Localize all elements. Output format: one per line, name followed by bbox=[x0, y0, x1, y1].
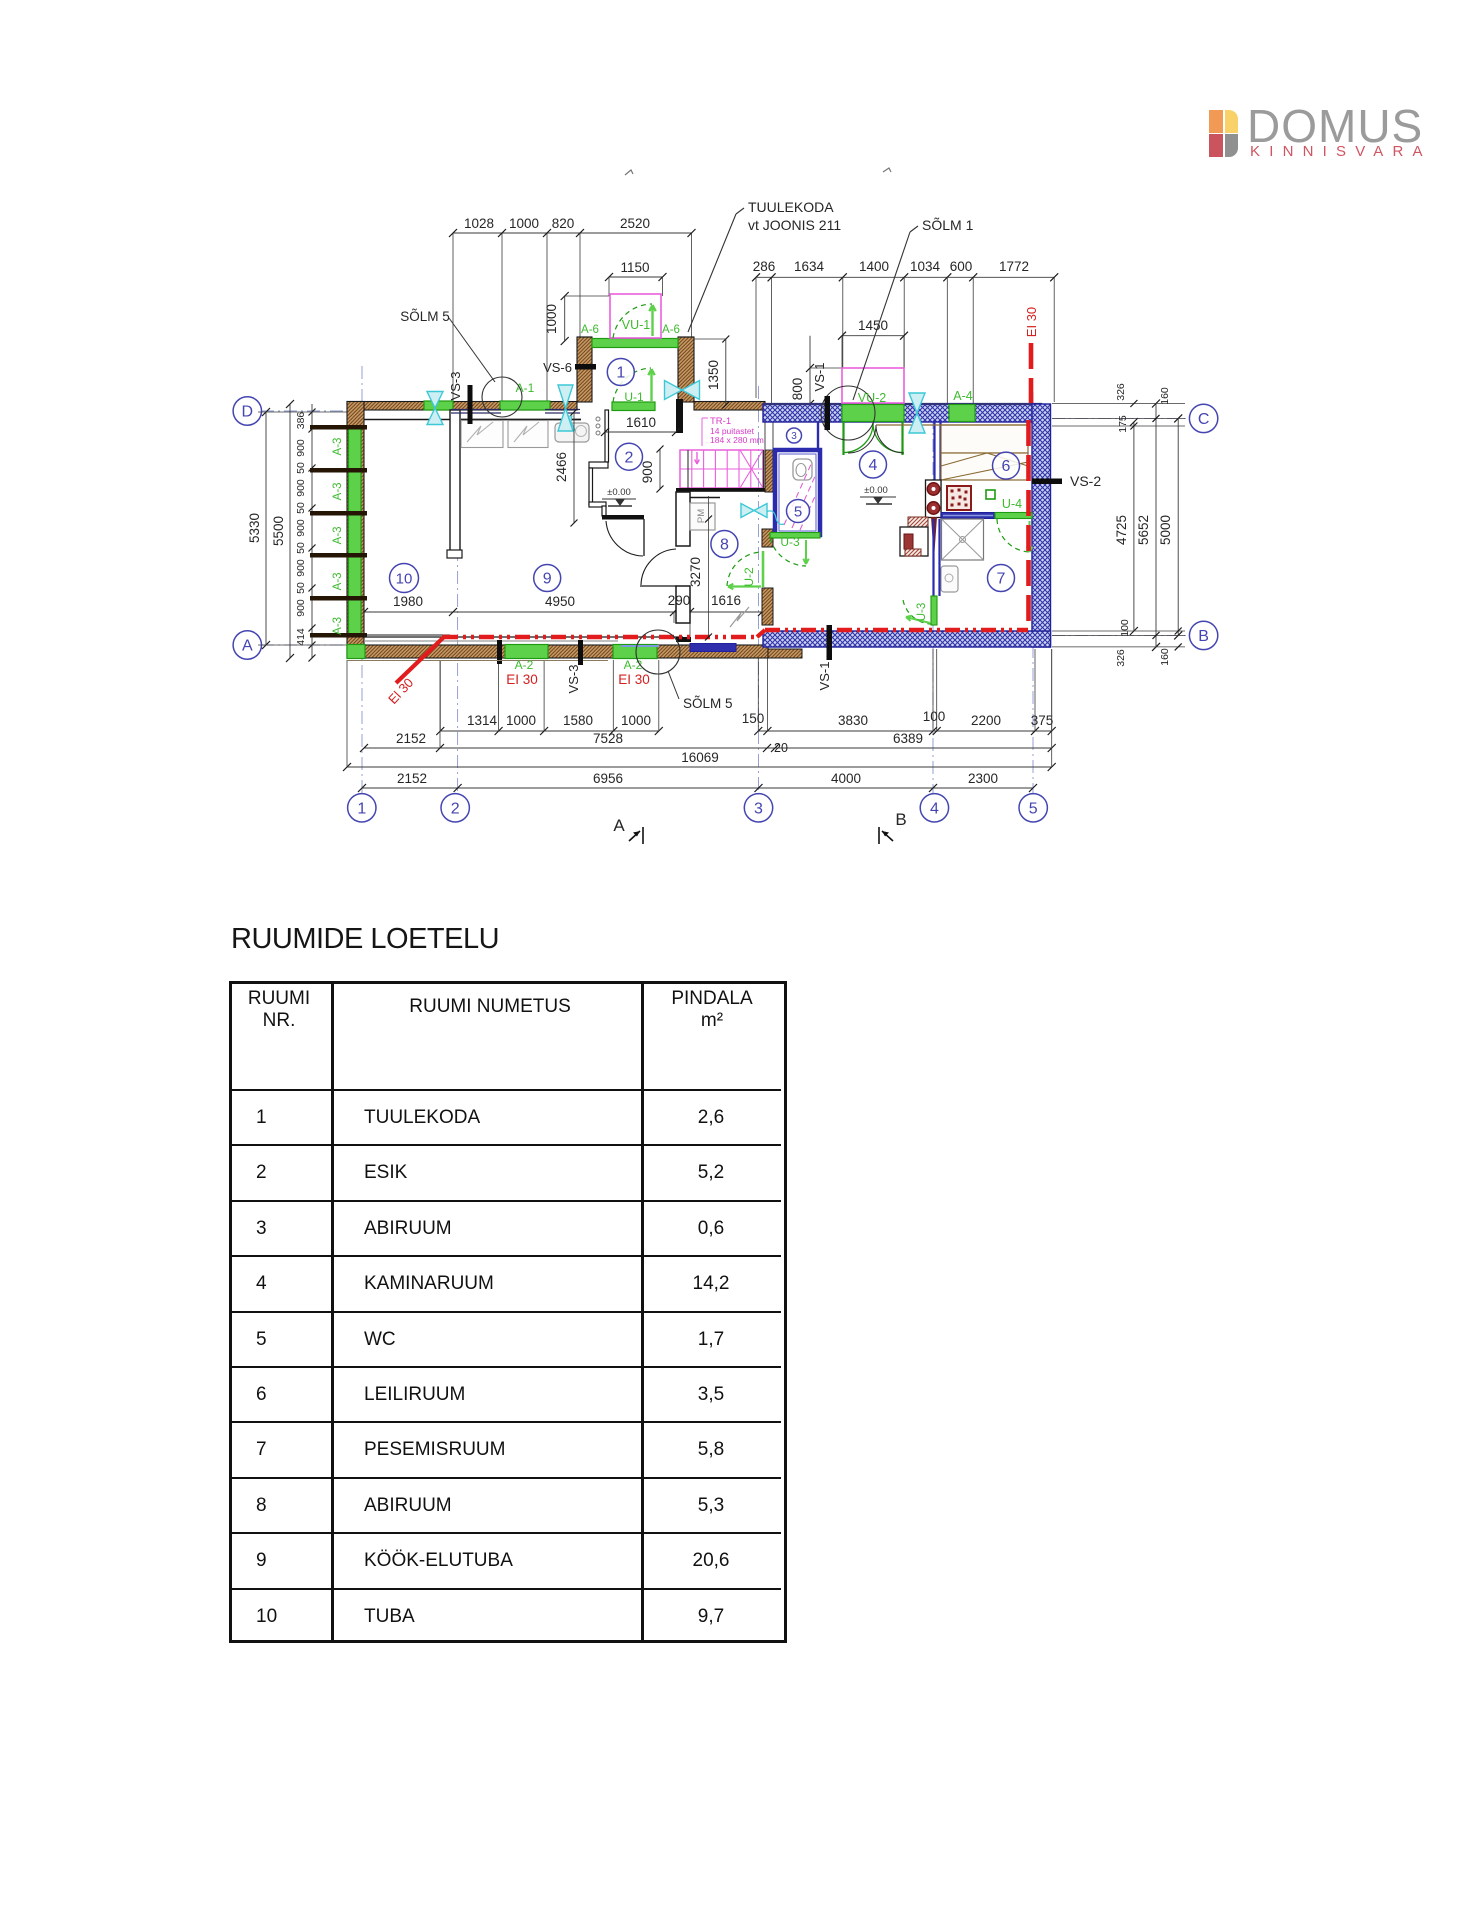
svg-text:U-4: U-4 bbox=[1002, 497, 1022, 511]
svg-text:4950: 4950 bbox=[545, 594, 575, 609]
svg-text:3: 3 bbox=[754, 800, 763, 817]
svg-text:U-1: U-1 bbox=[624, 390, 644, 404]
svg-text:50: 50 bbox=[295, 582, 307, 594]
svg-text:100: 100 bbox=[1119, 619, 1131, 637]
svg-text:A-4: A-4 bbox=[953, 389, 973, 403]
svg-text:2152: 2152 bbox=[397, 771, 427, 786]
svg-text:1772: 1772 bbox=[999, 259, 1029, 274]
svg-text:386: 386 bbox=[295, 412, 307, 430]
svg-text:B: B bbox=[1198, 628, 1209, 645]
svg-text:16069: 16069 bbox=[681, 750, 719, 765]
svg-text:2200: 2200 bbox=[971, 713, 1001, 728]
svg-text:5652: 5652 bbox=[1136, 515, 1151, 545]
svg-text:1634: 1634 bbox=[794, 259, 825, 274]
svg-text:1028: 1028 bbox=[464, 216, 494, 231]
svg-text:vt JOONIS 211: vt JOONIS 211 bbox=[748, 217, 841, 233]
svg-text:6: 6 bbox=[1002, 458, 1011, 475]
svg-text:VU-1: VU-1 bbox=[622, 318, 651, 332]
svg-text:1580: 1580 bbox=[563, 713, 593, 728]
svg-text:VS-6: VS-6 bbox=[543, 360, 572, 375]
svg-text:900: 900 bbox=[295, 519, 307, 537]
svg-text:5000: 5000 bbox=[1158, 515, 1173, 545]
svg-text:A-3: A-3 bbox=[332, 526, 344, 544]
svg-text:175: 175 bbox=[1117, 415, 1129, 433]
svg-text:2152: 2152 bbox=[396, 731, 426, 746]
svg-text:5: 5 bbox=[1029, 800, 1038, 817]
svg-text:5: 5 bbox=[794, 503, 802, 520]
svg-text:4: 4 bbox=[869, 457, 878, 474]
svg-text:600: 600 bbox=[950, 259, 973, 274]
svg-text:2: 2 bbox=[451, 800, 460, 817]
svg-text:7: 7 bbox=[997, 571, 1006, 588]
svg-text:50: 50 bbox=[295, 462, 307, 474]
svg-text:±0.00: ±0.00 bbox=[864, 485, 888, 496]
svg-text:±0.00: ±0.00 bbox=[607, 487, 631, 498]
svg-text:2300: 2300 bbox=[968, 771, 998, 786]
svg-text:4000: 4000 bbox=[831, 771, 861, 786]
svg-text:20: 20 bbox=[774, 741, 788, 755]
svg-text:El 30: El 30 bbox=[385, 675, 416, 707]
svg-text:A: A bbox=[242, 638, 253, 655]
svg-text:900: 900 bbox=[295, 559, 307, 577]
svg-text:A-3: A-3 bbox=[332, 482, 344, 500]
svg-text:VS-1: VS-1 bbox=[817, 662, 832, 691]
svg-text:VS-1: VS-1 bbox=[812, 363, 827, 392]
svg-text:PM: PM bbox=[696, 509, 707, 523]
svg-text:326: 326 bbox=[1115, 383, 1127, 401]
svg-text:1610: 1610 bbox=[626, 415, 656, 430]
svg-text:7528: 7528 bbox=[593, 731, 623, 746]
svg-text:VU-2: VU-2 bbox=[858, 391, 887, 405]
svg-text:10: 10 bbox=[396, 570, 413, 587]
svg-text:1034: 1034 bbox=[910, 259, 941, 274]
svg-text:50: 50 bbox=[295, 502, 307, 514]
svg-text:VS-3: VS-3 bbox=[448, 372, 463, 401]
svg-text:414: 414 bbox=[295, 628, 307, 646]
svg-text:5330: 5330 bbox=[247, 513, 262, 543]
svg-text:900: 900 bbox=[295, 439, 307, 457]
svg-text:A: A bbox=[613, 816, 625, 835]
svg-text:1150: 1150 bbox=[620, 260, 649, 275]
svg-text:A-6: A-6 bbox=[581, 324, 599, 336]
svg-text:C: C bbox=[1198, 411, 1210, 428]
svg-text:U-2: U-2 bbox=[742, 567, 756, 587]
svg-text:A-6: A-6 bbox=[662, 324, 680, 336]
svg-text:900: 900 bbox=[295, 599, 307, 617]
svg-text:100: 100 bbox=[923, 709, 946, 724]
svg-text:3830: 3830 bbox=[838, 713, 868, 728]
svg-text:800: 800 bbox=[790, 378, 805, 401]
svg-text:D: D bbox=[242, 404, 254, 421]
svg-text:50: 50 bbox=[295, 542, 307, 554]
svg-text:1000: 1000 bbox=[506, 713, 536, 728]
svg-text:SÕLM 5: SÕLM 5 bbox=[683, 696, 733, 711]
svg-text:A-1: A-1 bbox=[516, 381, 535, 395]
svg-text:2466: 2466 bbox=[554, 452, 569, 482]
svg-text:290: 290 bbox=[668, 593, 691, 608]
svg-text:1: 1 bbox=[357, 800, 366, 817]
svg-text:375: 375 bbox=[1031, 713, 1054, 728]
svg-text:A-3: A-3 bbox=[332, 572, 344, 590]
svg-text:1400: 1400 bbox=[859, 259, 889, 274]
svg-text:1: 1 bbox=[616, 365, 625, 382]
svg-text:3: 3 bbox=[791, 431, 797, 442]
svg-text:1980: 1980 bbox=[393, 594, 423, 609]
svg-text:A-3: A-3 bbox=[332, 438, 344, 456]
svg-text:EI 30: EI 30 bbox=[506, 672, 538, 687]
svg-text:286: 286 bbox=[753, 259, 776, 274]
svg-text:9: 9 bbox=[543, 571, 552, 588]
svg-text:150: 150 bbox=[742, 711, 765, 726]
svg-text:184 x 280 mm: 184 x 280 mm bbox=[710, 435, 764, 445]
svg-text:1000: 1000 bbox=[509, 216, 539, 231]
svg-text:VS-2: VS-2 bbox=[1070, 473, 1101, 489]
svg-text:6956: 6956 bbox=[593, 771, 623, 786]
svg-text:900: 900 bbox=[295, 479, 307, 497]
svg-text:A-3: A-3 bbox=[332, 617, 344, 635]
svg-text:900: 900 bbox=[640, 461, 655, 484]
svg-text:1350: 1350 bbox=[706, 360, 721, 390]
svg-text:TUULEKODA: TUULEKODA bbox=[748, 199, 834, 215]
svg-text:U-3: U-3 bbox=[916, 603, 928, 622]
svg-text:6389: 6389 bbox=[893, 731, 923, 746]
svg-text:B: B bbox=[895, 810, 906, 829]
svg-text:2520: 2520 bbox=[620, 216, 650, 231]
svg-text:1000: 1000 bbox=[544, 304, 559, 334]
svg-text:160: 160 bbox=[1159, 648, 1171, 666]
svg-text:8: 8 bbox=[720, 537, 729, 554]
svg-text:1314: 1314 bbox=[467, 713, 498, 728]
svg-text:EI 30: EI 30 bbox=[618, 672, 650, 687]
svg-text:820: 820 bbox=[552, 216, 575, 231]
svg-text:3270: 3270 bbox=[688, 557, 703, 587]
svg-text:SÕLM 1: SÕLM 1 bbox=[922, 217, 974, 233]
svg-text:160: 160 bbox=[1159, 387, 1171, 405]
svg-text:A-2: A-2 bbox=[515, 658, 534, 672]
svg-text:326: 326 bbox=[1115, 649, 1127, 667]
svg-text:4725: 4725 bbox=[1114, 515, 1129, 545]
svg-text:1450: 1450 bbox=[858, 318, 888, 333]
svg-text:U-3: U-3 bbox=[780, 535, 800, 549]
svg-text:4: 4 bbox=[930, 800, 939, 817]
svg-text:1000: 1000 bbox=[621, 713, 651, 728]
svg-text:1616: 1616 bbox=[711, 593, 741, 608]
svg-text:SÕLM 5: SÕLM 5 bbox=[400, 309, 450, 324]
svg-text:EI 30: EI 30 bbox=[1024, 307, 1039, 337]
svg-text:5500: 5500 bbox=[271, 516, 286, 546]
svg-text:2: 2 bbox=[625, 449, 634, 466]
svg-text:VS-3: VS-3 bbox=[566, 665, 581, 694]
